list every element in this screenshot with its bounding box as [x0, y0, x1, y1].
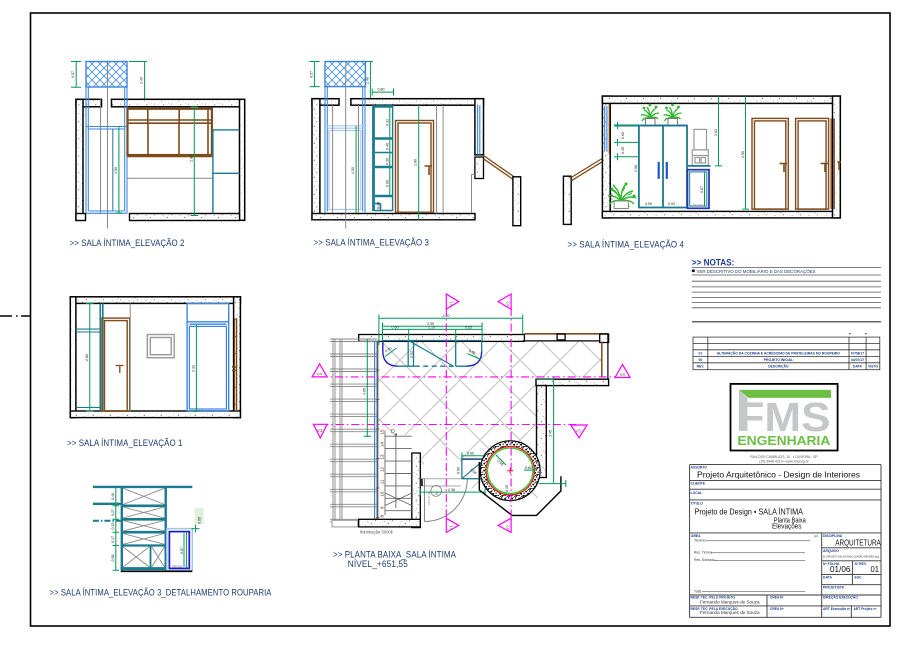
svg-text:V3: V3 [317, 428, 323, 433]
svg-text:2.40: 2.40 [140, 77, 144, 84]
svg-text:1.98: 1.98 [634, 165, 638, 172]
svg-text:DESCRIÇÃO: DESCRIÇÃO [768, 364, 789, 369]
svg-text:4.05: 4.05 [363, 388, 367, 395]
svg-text:2.50: 2.50 [741, 151, 745, 158]
svg-text:02_PROJETO SALA INTIMA_QUADRO: 02_PROJETO SALA INTIMA_QUADRO REVISÃO.dw… [823, 554, 879, 559]
svg-text:01: 01 [699, 352, 703, 356]
svg-text:0.87: 0.87 [700, 186, 704, 193]
svg-text:ÁREA: ÁREA [691, 533, 701, 538]
svg-text:0.05: 0.05 [198, 517, 202, 524]
svg-text:ARQUITETURA: ARQUITETURA [835, 539, 881, 548]
svg-text:CREA Nº: CREA Nº [770, 596, 785, 600]
svg-text:4.50: 4.50 [351, 167, 355, 174]
svg-text:8: 8 [380, 515, 385, 518]
svg-text:ALTERAÇÃO DA COZINHA E ACRÉSCI: ALTERAÇÃO DA COZINHA E ACRÉSCIMO DE PRAT… [717, 351, 840, 356]
svg-text:Iluminação 3000k: Iluminação 3000k [360, 530, 394, 535]
svg-text:2.02: 2.02 [409, 351, 413, 358]
svg-text:VER DESCRITIVO DO MOBILIÁRIO E: VER DESCRITIVO DO MOBILIÁRIO E DAS DECOR… [697, 268, 816, 275]
svg-text:0.27: 0.27 [111, 509, 115, 516]
svg-text:0.60: 0.60 [467, 451, 474, 455]
svg-text:04/07/17: 04/07/17 [851, 358, 864, 362]
svg-text:V4: V4 [620, 372, 626, 377]
svg-text:V2: V2 [506, 301, 511, 307]
svg-text:0.50: 0.50 [457, 467, 461, 474]
svg-text:2.80: 2.80 [85, 354, 89, 361]
svg-text:ART Projeto nº: ART Projeto nº [854, 607, 878, 611]
svg-text:Res. Térrea: Res. Térrea [694, 551, 712, 555]
svg-text:0.30: 0.30 [386, 158, 390, 165]
svg-text:0.15: 0.15 [505, 485, 509, 492]
svg-text:2.38: 2.38 [448, 488, 455, 492]
svg-text:9: 9 [380, 506, 385, 509]
svg-text:CLIENTE: CLIENTE [691, 481, 706, 485]
svg-text:0.40: 0.40 [377, 202, 381, 209]
svg-text:ACA 0.10: ACA 0.10 [427, 492, 431, 505]
svg-text:2.80: 2.80 [414, 159, 418, 166]
svg-text:2.40: 2.40 [366, 77, 370, 84]
svg-text:0.60: 0.60 [386, 180, 390, 187]
svg-text:DATA: DATA [823, 575, 832, 579]
svg-text:0.40: 0.40 [386, 143, 390, 150]
svg-text:PROJETO INICIAL: PROJETO INICIAL [764, 358, 793, 362]
svg-text:01: 01 [871, 565, 880, 574]
svg-text:11: 11 [380, 479, 385, 484]
svg-text:Minibar: Minibar [693, 204, 704, 208]
svg-text:Fernanda Marques de Souza: Fernanda Marques de Souza [700, 610, 760, 615]
svg-text:01/06: 01/06 [830, 565, 851, 574]
svg-text:LOCAL: LOCAL [691, 491, 703, 495]
svg-text:PROJETISTA: PROJETISTA [823, 586, 845, 590]
svg-text:ART Execução nº: ART Execução nº [823, 607, 851, 611]
svg-text:0.57: 0.57 [310, 71, 314, 78]
svg-text:ENGENHARIA: ENGENHARIA [737, 433, 831, 448]
svg-text:Nº REV.: Nº REV. [855, 562, 867, 566]
svg-text:00: 00 [699, 358, 703, 362]
svg-text:V3: V3 [576, 429, 582, 434]
svg-text:0.45: 0.45 [621, 147, 625, 154]
svg-text:0.60: 0.60 [621, 132, 625, 139]
svg-text:Projeto Arquitetônico - Design: Projeto Arquitetônico - Design de Interi… [697, 470, 860, 479]
svg-text:1.10: 1.10 [428, 325, 435, 329]
svg-text:0.31: 0.31 [386, 119, 390, 126]
svg-text:0.80: 0.80 [378, 88, 385, 92]
svg-text:14: 14 [380, 441, 385, 447]
svg-text:0.90: 0.90 [645, 202, 652, 206]
svg-text:ARQUIVO: ARQUIVO [823, 549, 839, 553]
svg-text:>> SALA ÍNTIMA_ELEVAÇÃO 4: >> SALA ÍNTIMA_ELEVAÇÃO 4 [568, 240, 685, 250]
svg-text:Elevações: Elevações [772, 524, 802, 531]
svg-text:2.32: 2.32 [192, 365, 196, 372]
svg-text:>> PLANTA BAIXA_SALA ÍNTIMA: >> PLANTA BAIXA_SALA ÍNTIMA [333, 550, 456, 560]
svg-text:15: 15 [380, 429, 385, 435]
svg-text:0.58: 0.58 [111, 555, 115, 562]
svg-text:>> SALA ÍNTIMA_ELEVAÇÃO 3_DETA: >> SALA ÍNTIMA_ELEVAÇÃO 3_DETALHAMENTO R… [50, 588, 272, 598]
svg-text:4.50: 4.50 [114, 167, 118, 174]
svg-text:12: 12 [380, 466, 385, 472]
svg-text:DISCIPLINA: DISCIPLINA [823, 534, 843, 538]
svg-text:07/08/17: 07/08/17 [851, 352, 864, 356]
svg-text:0.60: 0.60 [525, 466, 532, 470]
svg-text:NÍVEL_+651,55: NÍVEL_+651,55 [348, 559, 408, 569]
svg-text:VISTO: VISTO [868, 365, 878, 369]
svg-text:Fernando Marques de Souza: Fernando Marques de Souza [700, 599, 760, 604]
svg-text:13: 13 [380, 454, 385, 460]
svg-text:2.80: 2.80 [189, 155, 193, 162]
svg-text:DATA: DATA [853, 365, 862, 369]
svg-text:>> SALA ÍNTIMA_ELEVAÇÃO 2: >> SALA ÍNTIMA_ELEVAÇÃO 2 [70, 238, 185, 248]
svg-text:V2: V2 [506, 525, 511, 531]
svg-text:0.57: 0.57 [71, 71, 75, 78]
svg-text:DIREÇÃO EXECUÇÃO: DIREÇÃO EXECUÇÃO [823, 595, 858, 600]
svg-text:0.92: 0.92 [668, 202, 675, 206]
svg-text:CREA Nº: CREA Nº [770, 607, 785, 611]
svg-text:Terreno: Terreno [694, 539, 706, 543]
svg-text:Projeto de Design • SALA ÍNTIM: Projeto de Design • SALA ÍNTIMA [695, 508, 804, 517]
svg-text:3.45: 3.45 [549, 430, 553, 437]
svg-text:0.60: 0.60 [392, 325, 399, 329]
svg-text:>> SALA ÍNTIMA_ELEVAÇÃO 1: >> SALA ÍNTIMA_ELEVAÇÃO 1 [67, 438, 183, 448]
svg-text:ASSUNTO: ASSUNTO [691, 466, 708, 470]
svg-text:V1: V1 [449, 525, 454, 531]
svg-text:0.17: 0.17 [111, 536, 115, 543]
svg-text:(19) 3948-4213 • www.fmseng.: (19) 3948-4213 • www.fmseng.br [759, 459, 809, 463]
svg-text:>> NOTAS:: >> NOTAS: [692, 258, 735, 269]
svg-text:V4: V4 [317, 372, 323, 377]
svg-text:0.15: 0.15 [111, 523, 115, 530]
svg-text:>> SALA ÍNTIMA_ELEVAÇÃO 3: >> SALA ÍNTIMA_ELEVAÇÃO 3 [314, 238, 430, 248]
svg-text:0.46: 0.46 [111, 493, 115, 500]
svg-text:Minibar: Minibar [172, 565, 183, 569]
svg-text:Res. Sobrado: Res. Sobrado [694, 558, 715, 562]
svg-text:0.87: 0.87 [180, 547, 184, 554]
svg-text:REV.: REV. [697, 365, 705, 369]
svg-text:0.30: 0.30 [610, 193, 614, 200]
svg-text:D: D [391, 429, 395, 435]
svg-text:ESC.: ESC. [855, 575, 863, 579]
svg-text:1.63: 1.63 [714, 129, 718, 136]
svg-text:Total: Total [694, 589, 701, 593]
svg-text:10: 10 [380, 491, 385, 497]
svg-text:m²: m² [814, 535, 819, 539]
svg-text:0.65: 0.65 [465, 325, 472, 329]
svg-text:TÍTULO: TÍTULO [691, 501, 704, 506]
svg-text:V1: V1 [449, 301, 454, 307]
